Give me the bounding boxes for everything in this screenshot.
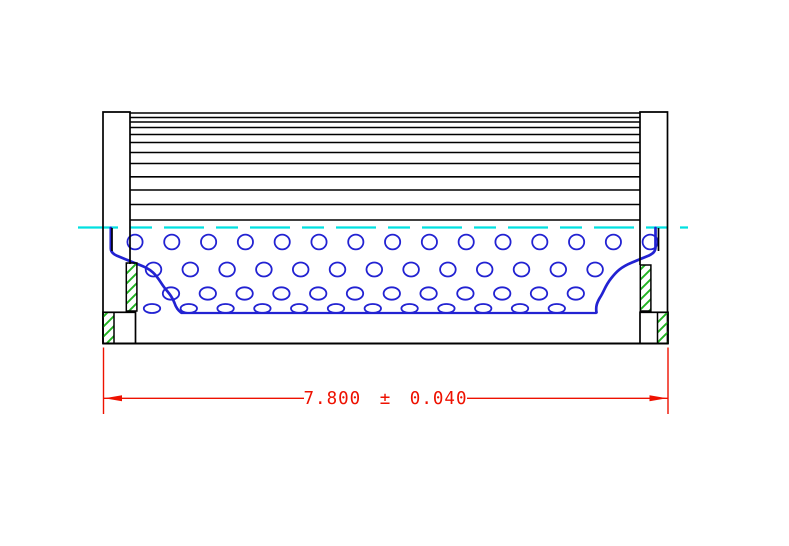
core-hole [587,263,603,277]
arrowhead-left [105,395,123,401]
core-hole [514,263,530,277]
left-cap-hatch-lower [103,312,114,343]
core-hole [181,304,197,313]
core-hole [217,304,233,313]
core-hole [293,263,309,277]
core-hole [457,287,473,299]
core-hole [236,287,252,299]
left-cap-hatch-upper [126,263,137,311]
core-hole [568,287,584,299]
core-hole [403,263,419,277]
core-hole [201,235,216,250]
core-hole [164,235,179,250]
core-hole [420,287,436,299]
core-hole [200,287,216,299]
core-hole [275,235,290,250]
core-hole [238,235,253,250]
core-hole [291,304,307,313]
core-hole [438,304,454,313]
core-hole [348,235,363,250]
core-hole [183,263,199,277]
dimension-text: 7.800 ± 0.040 [304,389,468,409]
core-holes [127,235,657,313]
core-hole [365,304,381,313]
core-hole [328,304,344,313]
core-hole [144,304,160,313]
core-hole [475,304,491,313]
arrowhead-right [650,395,668,401]
dimension: 7.800 ± 0.040 [104,348,669,415]
core-hole [384,287,400,299]
right-cap-hatch-upper [640,265,651,311]
core-hole [531,287,547,299]
core-hole [311,235,326,250]
core-hole [310,287,326,299]
drawing-canvas: 7.800 ± 0.040 [0,0,789,546]
core-hole [367,263,383,277]
core-hole [254,304,270,313]
core-hole [440,263,456,277]
pleat-lines [130,113,640,220]
core-hole [512,304,528,313]
core-hole [385,235,400,250]
core-hole [273,287,289,299]
core-hole [459,235,474,250]
core-hole [256,263,272,277]
core-hole [219,263,235,277]
core-hole [569,235,584,250]
core-hole [347,287,363,299]
core-hole [477,263,493,277]
filter-element-section-drawing: 7.800 ± 0.040 [0,0,789,546]
right-cap-hatch-lower [658,312,669,343]
core-hole [532,235,547,250]
core-hole [495,235,510,250]
core-hole [606,235,621,250]
core-hole [401,304,417,313]
core-hole [551,263,567,277]
core-hole [494,287,510,299]
core-hole [422,235,437,250]
core-hole [549,304,565,313]
core-hole [330,263,346,277]
